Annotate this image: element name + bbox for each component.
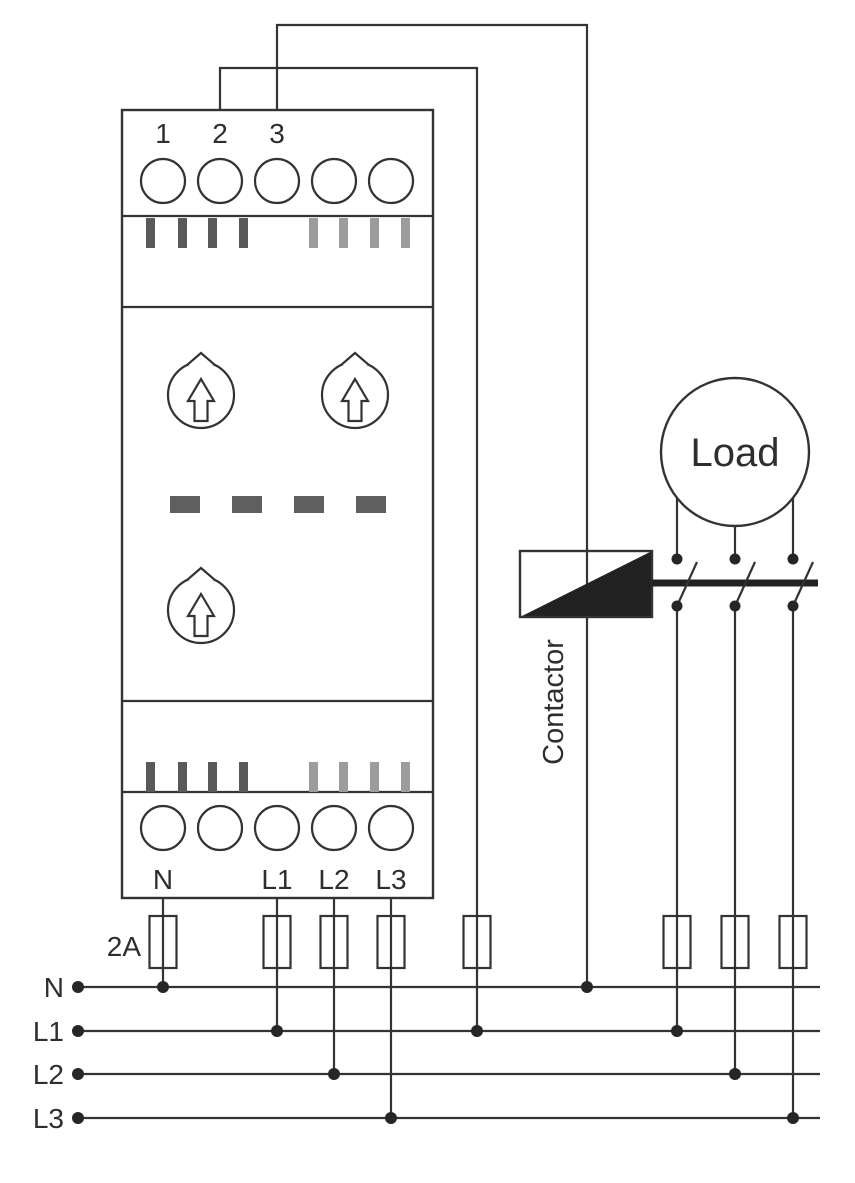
rotary-dial-2[interactable]	[322, 353, 388, 428]
status-bar-light	[339, 762, 348, 792]
terminal-label-3: 3	[269, 118, 285, 149]
terminal-label-l1: L1	[261, 864, 292, 895]
terminal-circle	[312, 159, 356, 203]
status-bar-light	[309, 762, 318, 792]
status-bar-light	[401, 218, 410, 248]
terminal-label-l2: L2	[318, 864, 349, 895]
contact-dot-upper	[788, 554, 799, 565]
up-arrow-icon	[342, 379, 368, 421]
junction-dot	[671, 1025, 683, 1037]
wiring-diagram-page: 1 2 3	[0, 0, 855, 1183]
display-dash	[356, 496, 386, 513]
rail-label-l2: L2	[33, 1059, 64, 1090]
status-bar-dark	[208, 762, 217, 792]
terminal-circle	[255, 159, 299, 203]
junction-dot	[787, 1112, 799, 1124]
terminal-circle	[198, 159, 242, 203]
junction-dot	[729, 1068, 741, 1080]
dial-pointer	[341, 353, 369, 365]
status-bar-dark	[178, 762, 187, 792]
up-arrow-icon	[188, 594, 214, 636]
terminal-circle	[369, 806, 413, 850]
status-bars-bottom	[146, 762, 410, 792]
rail-end-dot	[72, 1068, 84, 1080]
terminal-circle	[369, 159, 413, 203]
status-bar-dark	[146, 218, 155, 248]
dial-pointer	[187, 568, 215, 580]
load: Load	[661, 378, 809, 526]
rail-end-dot	[72, 1112, 84, 1124]
contact-dot-lower	[730, 601, 741, 612]
status-bar-light	[339, 218, 348, 248]
terminal-circle	[255, 806, 299, 850]
rail-label-n: N	[44, 972, 64, 1003]
status-bar-light	[309, 218, 318, 248]
junction-dot	[328, 1068, 340, 1080]
contact-dot-lower	[788, 601, 799, 612]
terminal-circle	[141, 159, 185, 203]
rail-end-dot	[72, 981, 84, 993]
wiring-diagram: 1 2 3	[0, 0, 855, 1183]
load-label: Load	[691, 431, 780, 475]
status-bar-dark	[146, 762, 155, 792]
terminal-label-l3: L3	[375, 864, 406, 895]
bottom-terminal-block	[141, 806, 413, 850]
monitor-device: 1 2 3	[122, 110, 433, 898]
rail-label-l1: L1	[33, 1016, 64, 1047]
display-dash	[170, 496, 200, 513]
contact-dot-upper	[730, 554, 741, 565]
rail-end-dot	[72, 1025, 84, 1037]
status-bar-dark	[178, 218, 187, 248]
junction-dot	[157, 981, 169, 993]
contact-dot-upper	[672, 554, 683, 565]
dial-circle	[168, 362, 234, 428]
terminal-circle	[198, 806, 242, 850]
display-dash	[294, 496, 324, 513]
status-bars-top	[146, 218, 410, 248]
fuses: 2A	[107, 916, 807, 968]
status-bar-light	[401, 762, 410, 792]
rotary-dial-3[interactable]	[168, 568, 234, 643]
dial-circle	[322, 362, 388, 428]
dial-pointer	[187, 353, 215, 365]
junction-dot	[385, 1112, 397, 1124]
status-bar-dark	[239, 762, 248, 792]
up-arrow-icon	[188, 379, 214, 421]
terminal-label-2: 2	[212, 118, 228, 149]
terminal-label-n: N	[153, 864, 173, 895]
contactor: Contactor	[520, 551, 818, 765]
junction-dot	[581, 981, 593, 993]
status-bar-dark	[239, 218, 248, 248]
device-outline	[122, 110, 433, 898]
status-bar-light	[370, 762, 379, 792]
contact-dot-lower	[672, 601, 683, 612]
rail-label-l3: L3	[33, 1103, 64, 1134]
terminal-circle	[312, 806, 356, 850]
rotary-dial-1[interactable]	[168, 353, 234, 428]
terminal-circle	[141, 806, 185, 850]
bottom-terminal-labels: N L1 L2 L3	[153, 864, 407, 895]
power-rails: N L1 L2 L3	[33, 972, 820, 1134]
top-terminal-block	[141, 159, 413, 203]
status-bar-dark	[208, 218, 217, 248]
contactor-label: Contactor	[538, 639, 570, 765]
top-terminal-labels: 1 2 3	[155, 118, 285, 149]
display-dashes	[170, 496, 386, 513]
dial-circle	[168, 577, 234, 643]
junction-dot	[471, 1025, 483, 1037]
status-bar-light	[370, 218, 379, 248]
display-dash	[232, 496, 262, 513]
terminal-label-1: 1	[155, 118, 171, 149]
fuse-rating-label: 2A	[107, 931, 142, 962]
junction-dot	[271, 1025, 283, 1037]
